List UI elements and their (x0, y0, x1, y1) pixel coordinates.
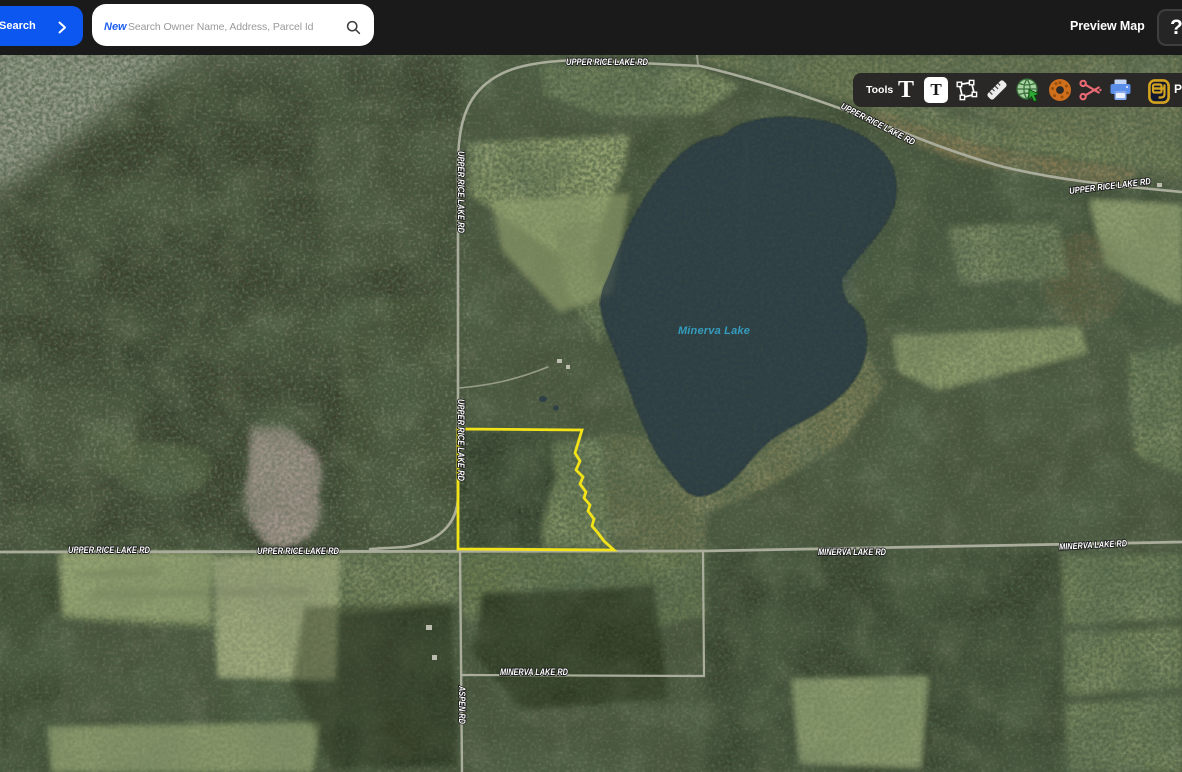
svg-text:ASPEN RD: ASPEN RD (457, 685, 467, 724)
svg-text:MINERVA LAKE RD: MINERVA LAKE RD (818, 547, 886, 557)
svg-text:MINERVA LAKE RD: MINERVA LAKE RD (500, 667, 568, 677)
svg-text:UPPER RICE LAKE RD: UPPER RICE LAKE RD (456, 151, 466, 233)
svg-text:Minerva Lake: Minerva Lake (678, 325, 750, 337)
svg-text:UPPER RICE LAKE RD: UPPER RICE LAKE RD (566, 57, 648, 67)
svg-text:UPPER RICE LAKE RD: UPPER RICE LAKE RD (68, 545, 150, 555)
svg-text:UPPER RICE LAKE RD: UPPER RICE LAKE RD (257, 546, 339, 556)
svg-text:UPPER RICE LAKE RD: UPPER RICE LAKE RD (456, 399, 466, 481)
